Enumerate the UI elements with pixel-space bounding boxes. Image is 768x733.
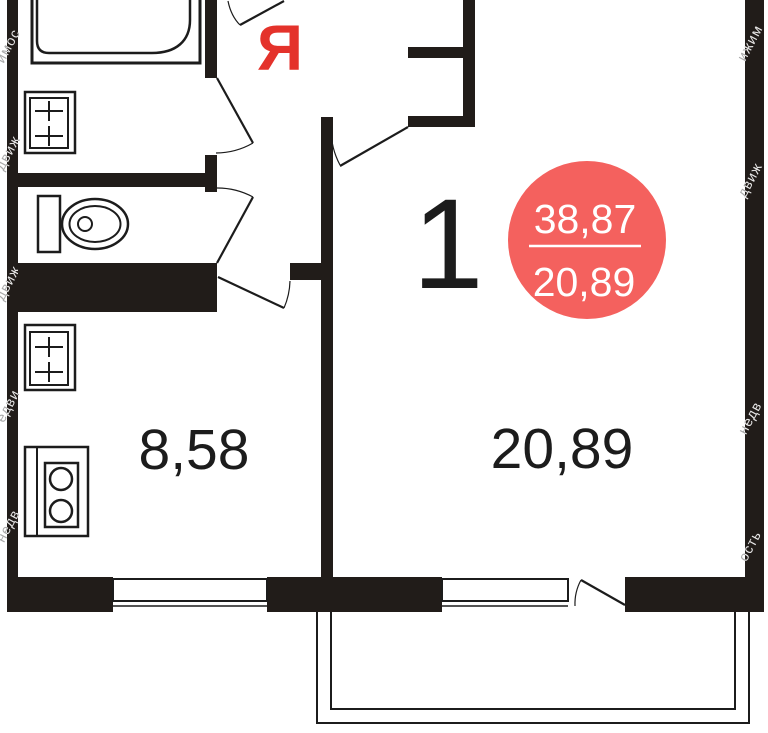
entry-niche-stub-top bbox=[408, 47, 463, 58]
entry-niche-wall bbox=[463, 0, 475, 127]
floor-plan-canvas: имос движ движ едви недв ижим движ недв … bbox=[0, 0, 768, 733]
hall-living-partition-wall bbox=[321, 117, 333, 612]
floor-plan: имос движ движ едви недв ижим движ недв … bbox=[0, 0, 768, 733]
badge-total-area: 38,87 bbox=[534, 196, 637, 242]
unit-number: 1 bbox=[412, 173, 483, 316]
area-badge: 38,87 20,89 bbox=[508, 161, 666, 319]
bathroom-wall-upper bbox=[205, 0, 217, 78]
bottom-wall-middle bbox=[267, 577, 442, 612]
kitchen-door-stub-wall bbox=[290, 263, 323, 280]
kitchen-area-label: 8,58 bbox=[139, 418, 250, 482]
yandex-logo: Я bbox=[257, 12, 303, 84]
badge-living-area: 20,89 bbox=[533, 259, 636, 305]
bathroom-toilet-divider-wall bbox=[18, 173, 215, 187]
living-area-label: 20,89 bbox=[491, 417, 634, 481]
bottom-wall-left bbox=[7, 577, 113, 612]
plan-background bbox=[0, 0, 768, 733]
bottom-wall-right bbox=[625, 577, 764, 612]
vent-shaft-block bbox=[18, 263, 217, 312]
entry-niche-stub-bottom bbox=[408, 116, 475, 127]
right-wall bbox=[745, 0, 764, 612]
